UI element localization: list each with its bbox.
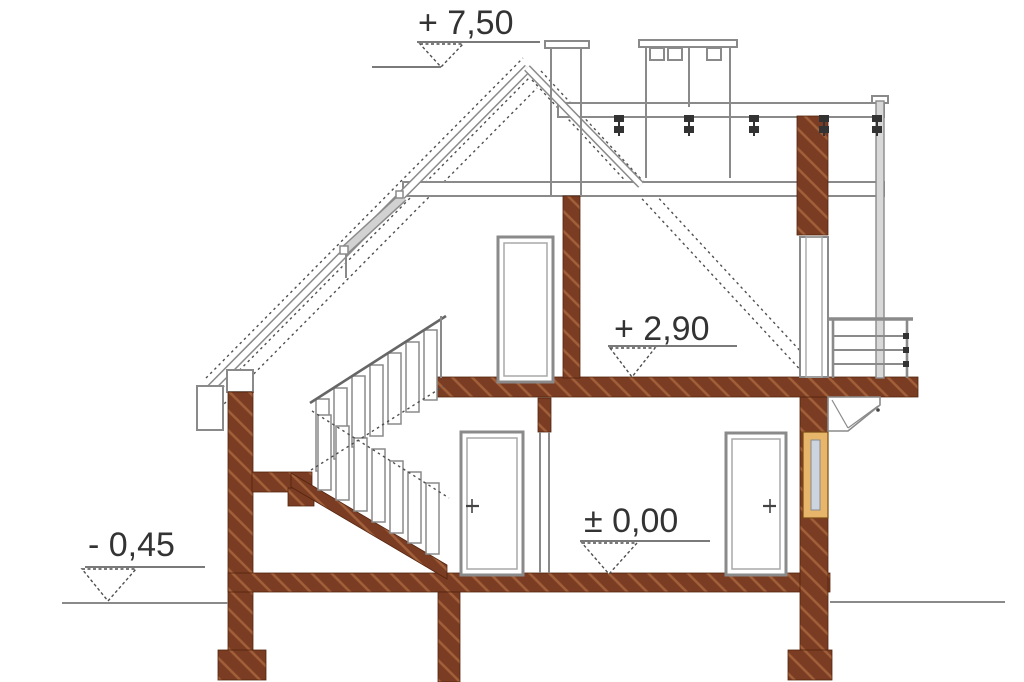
elevation-triangle-icon [82, 569, 136, 601]
level-label-ridge: + 7,50 [418, 4, 513, 42]
chimney-vent [707, 48, 721, 60]
roof-tie-bolts [614, 115, 882, 136]
elevation-triangle-icon [582, 543, 637, 574]
chimney-vent [668, 48, 682, 60]
chimney-left [545, 41, 589, 196]
balcony-bracket [828, 397, 880, 431]
door-ground-right [726, 433, 786, 575]
elevation-triangle-icon [420, 44, 463, 67]
chimney-vent [650, 48, 664, 60]
roof-skylight [340, 191, 403, 278]
chimney-right-cap [639, 40, 737, 47]
partition-head [538, 398, 551, 432]
staircase [310, 316, 449, 554]
elevation-marker-ground: ± 0,00 [580, 502, 710, 574]
elevation-marker-ridge: + 7,50 [372, 4, 540, 67]
house-section-drawing: + 7,50 + 2,90 ± 0,00 - 0,45 [0, 0, 1024, 682]
window-glass [811, 440, 820, 510]
footing-left [218, 650, 266, 680]
level-label-attic: + 2,90 [614, 310, 709, 348]
dormer-flat-roof [558, 103, 884, 117]
partition-wall [540, 432, 549, 573]
elevation-marker-grade: - 0,45 [82, 526, 205, 601]
chimney-left-cap [545, 41, 589, 48]
wall-attic-center [563, 196, 580, 378]
balcony-door-opening [800, 237, 828, 377]
level-label-ground: ± 0,00 [584, 502, 678, 540]
window-right-wall [803, 432, 828, 518]
pier-middle [438, 592, 460, 682]
section-canvas: + 7,50 + 2,90 ± 0,00 - 0,45 [0, 0, 1024, 682]
wall-left [228, 392, 253, 652]
stair-stringer [291, 473, 447, 579]
door-attic [498, 237, 553, 382]
balcony-railing [827, 319, 913, 378]
elevation-triangle-icon [610, 348, 655, 377]
elevation-marker-attic: + 2,90 [608, 310, 737, 377]
door-ground-left [461, 432, 523, 575]
footing-right [788, 650, 832, 680]
level-label-grade: - 0,45 [88, 526, 175, 564]
